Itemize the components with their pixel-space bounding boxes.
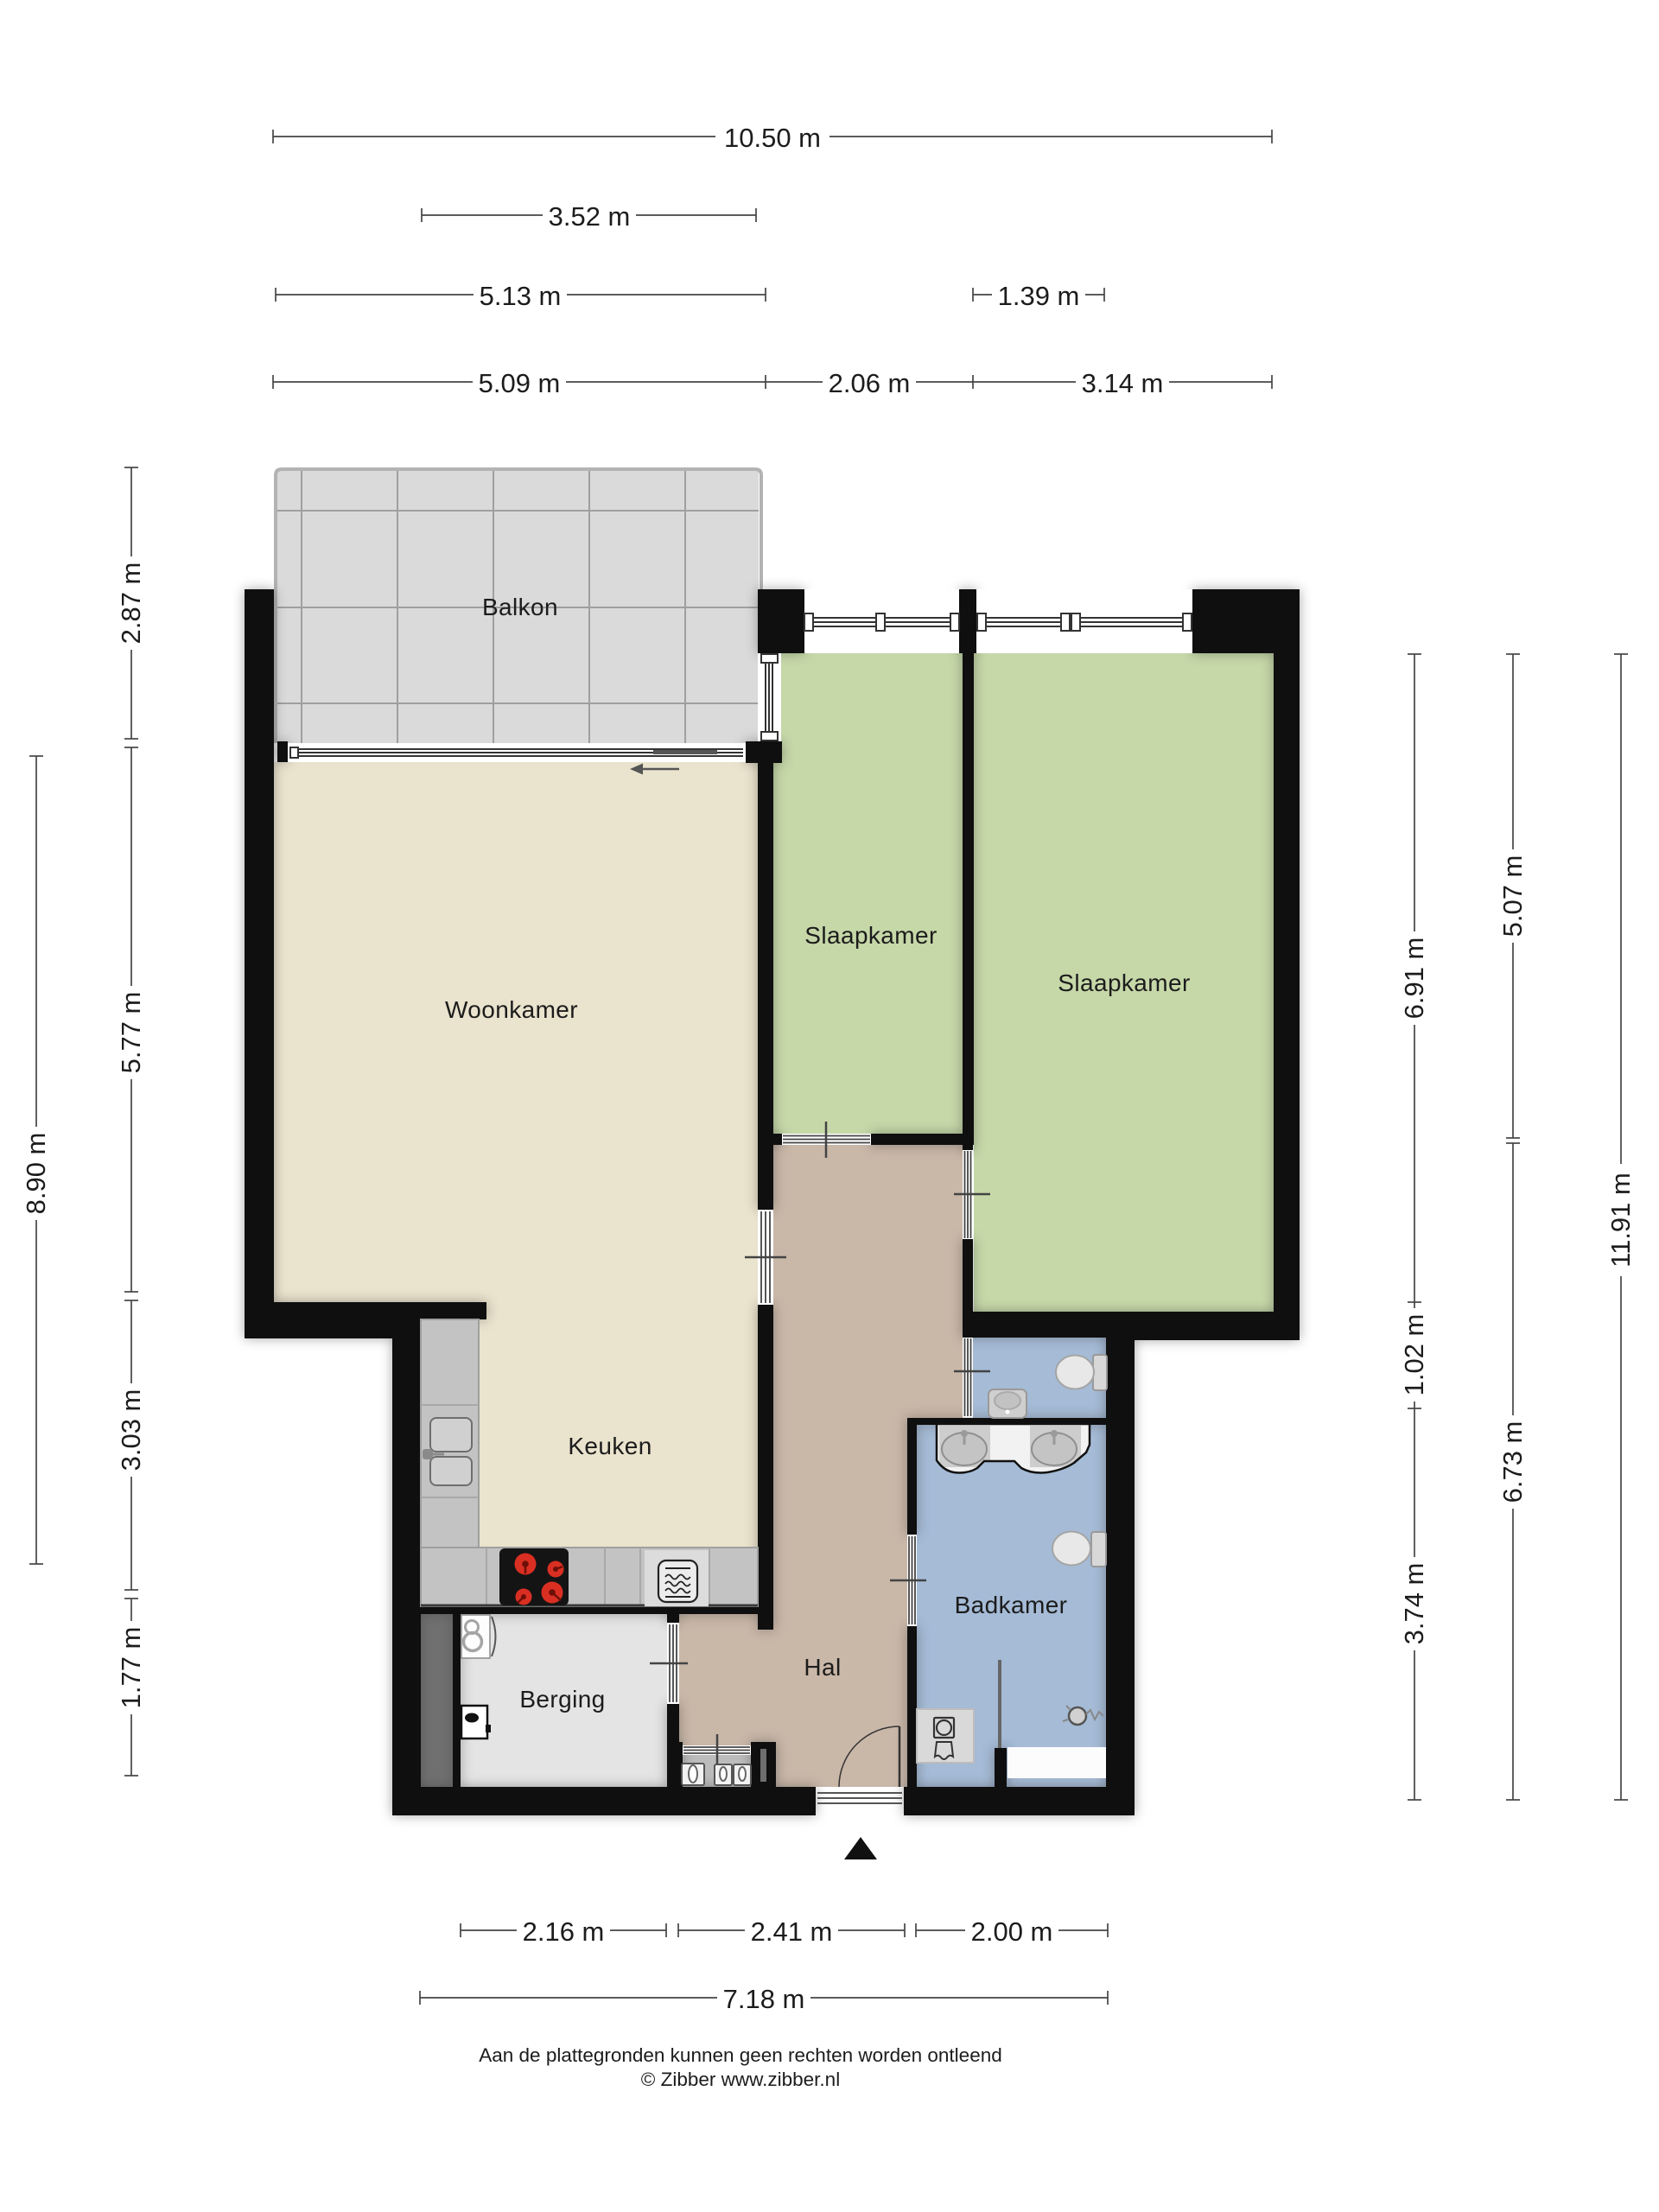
svg-text:11.91 m: 11.91 m <box>1605 1173 1636 1268</box>
svg-text:3.03 m: 3.03 m <box>116 1389 146 1471</box>
svg-text:Badkamer: Badkamer <box>955 1592 1068 1618</box>
svg-text:Slaapkamer: Slaapkamer <box>804 922 937 949</box>
svg-text:3.14 m: 3.14 m <box>1082 368 1164 398</box>
svg-text:6.91 m: 6.91 m <box>1399 938 1429 1020</box>
svg-text:6.73 m: 6.73 m <box>1497 1421 1528 1503</box>
svg-text:Hal: Hal <box>804 1654 841 1681</box>
svg-text:© Zibber www.zibber.nl: © Zibber www.zibber.nl <box>641 2069 840 2090</box>
svg-text:8.90 m: 8.90 m <box>21 1133 51 1215</box>
svg-text:5.07 m: 5.07 m <box>1497 855 1528 938</box>
svg-text:Balkon: Balkon <box>482 594 558 620</box>
svg-text:Berging: Berging <box>519 1686 605 1713</box>
svg-text:Slaapkamer: Slaapkamer <box>1058 969 1190 996</box>
svg-text:Aan de plattegronden kunnen ge: Aan de plattegronden kunnen geen rechten… <box>479 2044 1001 2066</box>
svg-text:2.00 m: 2.00 m <box>971 1916 1053 1947</box>
svg-text:1.39 m: 1.39 m <box>998 281 1080 311</box>
svg-text:7.18 m: 7.18 m <box>723 1984 805 2014</box>
svg-text:5.77 m: 5.77 m <box>116 992 146 1074</box>
svg-text:3.52 m: 3.52 m <box>549 201 631 232</box>
svg-text:2.87 m: 2.87 m <box>116 563 146 645</box>
svg-text:5.13 m: 5.13 m <box>480 281 562 311</box>
svg-text:Woonkamer: Woonkamer <box>445 996 578 1023</box>
svg-text:1.77 m: 1.77 m <box>116 1627 146 1709</box>
svg-text:Keuken: Keuken <box>568 1433 652 1459</box>
svg-text:2.06 m: 2.06 m <box>829 368 911 398</box>
svg-text:2.41 m: 2.41 m <box>751 1916 833 1947</box>
svg-text:1.02 m: 1.02 m <box>1399 1314 1429 1396</box>
svg-text:10.50 m: 10.50 m <box>724 123 821 153</box>
svg-text:2.16 m: 2.16 m <box>523 1916 605 1947</box>
svg-text:5.09 m: 5.09 m <box>479 368 561 398</box>
svg-text:3.74 m: 3.74 m <box>1399 1563 1429 1645</box>
